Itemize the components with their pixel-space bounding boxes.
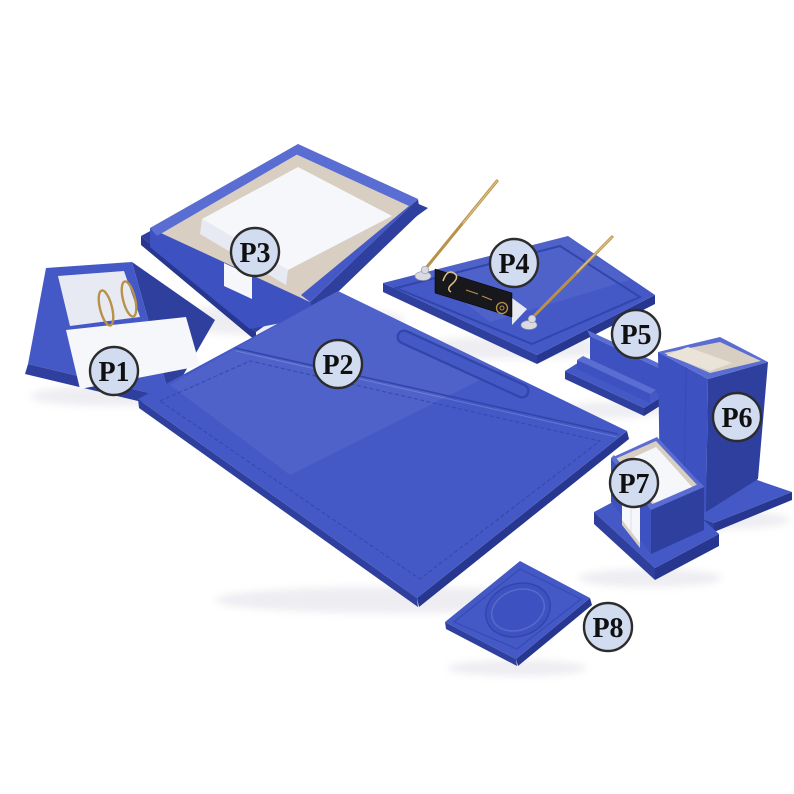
product-photo: P1 P2 P3 P4 P5 P6 P7 P8 [0, 0, 794, 794]
part-label-p2: P2 [314, 340, 362, 388]
part-label-p1: P1 [90, 347, 138, 395]
pen-left-highlight [463, 181, 497, 223]
part-label-p6: P6 [713, 393, 761, 441]
label-text: P8 [592, 613, 623, 644]
part-label-p5: P5 [612, 310, 660, 358]
part-label-p7: P7 [610, 459, 658, 507]
desk-set-illustration: P1 P2 P3 P4 P5 P6 P7 P8 [0, 0, 794, 794]
pen-left-ball [421, 266, 429, 274]
part-label-p8: P8 [584, 603, 632, 651]
label-text: P7 [618, 469, 649, 500]
label-text: P6 [721, 403, 752, 434]
label-text: P3 [239, 238, 270, 269]
label-text: P4 [498, 249, 529, 280]
part-label-p3: P3 [231, 228, 279, 276]
label-text: P2 [322, 350, 353, 381]
coaster [445, 561, 592, 666]
pen-right-ball [528, 315, 536, 323]
part-label-p4: P4 [490, 239, 538, 287]
label-text: P1 [98, 357, 129, 388]
label-text: P5 [620, 320, 651, 351]
